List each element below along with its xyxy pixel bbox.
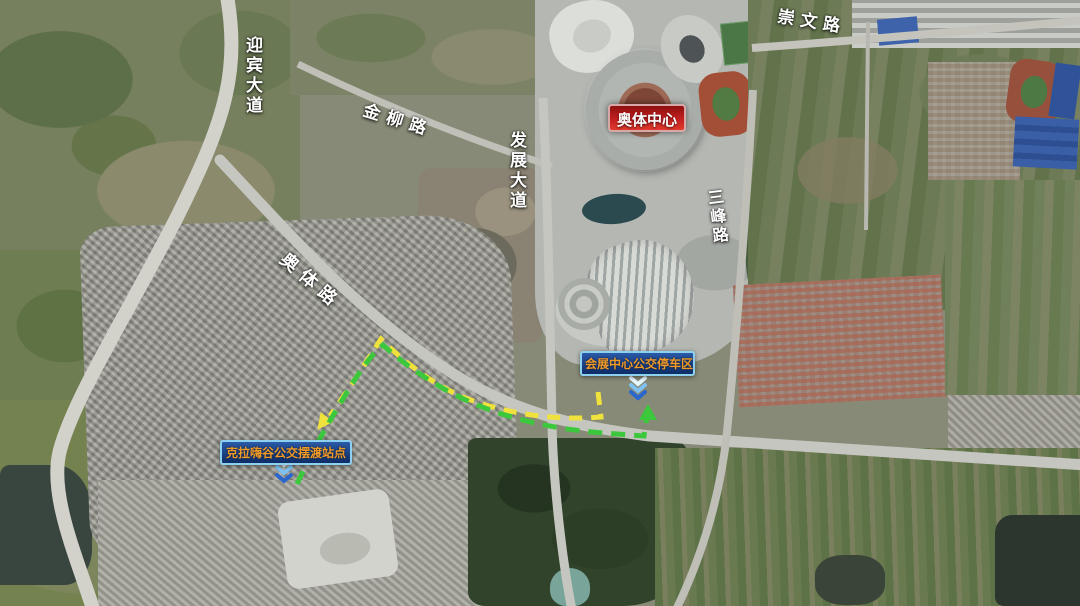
- satellite-map[interactable]: 崇文路 迎宾大道 金柳路 发展大道 三峰路 奥体路 奥体中心 会展中心公交停车区…: [0, 0, 1080, 606]
- route-overlay: [0, 0, 1080, 606]
- road-label-yingbin: 迎宾大道: [240, 36, 265, 116]
- shuttle-station-label: 克拉嗨谷公交摆渡站点: [220, 440, 352, 465]
- green-arrowhead-icon: [639, 404, 657, 420]
- route-yellow-dashed: [330, 339, 601, 418]
- parking-area-label: 会展中心公交停车区: [580, 351, 695, 376]
- parking-marker-chevron-icon: [627, 375, 649, 401]
- stadium-badge: 奥体中心: [608, 104, 686, 132]
- road-label-fazhan: 发展大道: [504, 131, 529, 211]
